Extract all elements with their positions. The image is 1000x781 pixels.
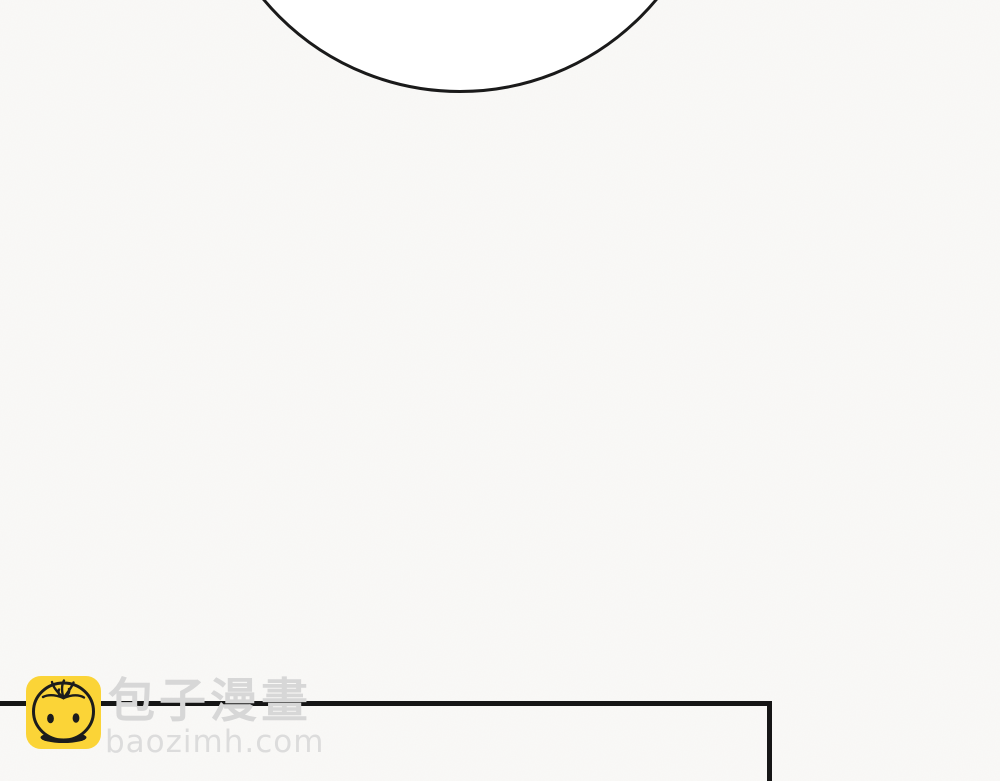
panel-border-right [767,701,772,781]
panel-border-top [0,701,772,706]
comic-page-canvas: 包子漫畫 baozimh.com [0,0,1000,781]
paper-texture [0,0,1000,781]
